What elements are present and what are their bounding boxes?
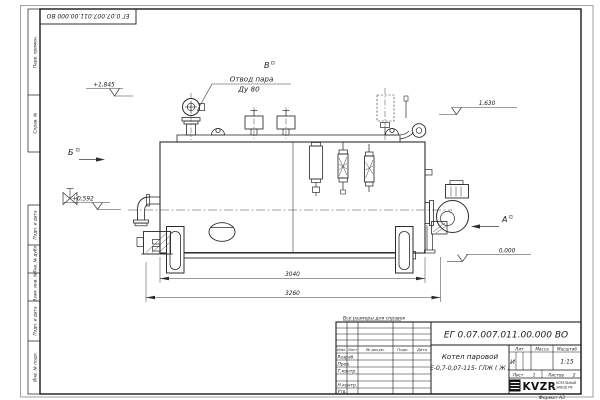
company-tagline-1: КОТЕЛЬНЫЙ	[556, 380, 577, 385]
view-b-label: Б	[68, 148, 74, 157]
col-izm: Изм.	[337, 347, 346, 352]
col-doc: № докум.	[365, 347, 385, 352]
sheets-label: Листов	[547, 373, 564, 378]
role-approver: Утв.	[338, 389, 347, 395]
margin-label-podp-data-1: Подп. и дата	[33, 210, 39, 240]
elevation-value: +0,592	[72, 197, 94, 203]
scale-value: 1:15	[560, 359, 574, 366]
drawing-sheet: ЕГ 0.07.007.011.00.000 ВО Перв. примен. …	[0, 0, 600, 400]
margin-label-inv-podl: Инв. № подл.	[33, 352, 39, 382]
callout-steam-line2: Ду 80	[237, 85, 260, 94]
view-a-label: А	[501, 215, 507, 224]
role-developer: Разраб.	[338, 355, 355, 361]
dim-value-3040: 3040	[285, 272, 300, 278]
col-list: Лист	[347, 347, 358, 352]
view-v-label: В	[264, 61, 270, 70]
elevation-value: +1,845	[93, 83, 115, 89]
sheet-label: Лист	[512, 373, 524, 378]
col-podp: Подп.	[397, 347, 409, 352]
role-checker: Пров.	[338, 362, 351, 368]
role-tcontrol: Т.контр.	[338, 369, 357, 375]
company-logo-text: KVZR	[523, 381, 557, 393]
mass-label: Масса	[535, 347, 549, 352]
lit-label: Лит.	[514, 347, 525, 352]
role-ncontrol: Н.контр.	[338, 383, 358, 389]
dim-value-3260: 3260	[285, 291, 300, 297]
lit-value: И	[510, 358, 515, 366]
boiler-general-view-drawing: ЕГ 0.07.007.011.00.000 ВО Перв. примен. …	[0, 0, 600, 400]
scale-label: Масштаб	[557, 347, 577, 352]
stamp-designation: ЕГ 0.07.007.011.00.000 ВО	[46, 12, 129, 19]
title-designation: ЕГ 0.07.007.011.00.000 ВО	[444, 331, 568, 341]
margin-label-vzam-inv: Взам. инв. №	[33, 272, 39, 302]
company-tagline-2: ЗАВОД РФ	[556, 386, 573, 390]
product-name-line2: Е-0,7-0,07-115- ГЛЖ ( Ж )	[430, 365, 510, 372]
margin-label-perv-primen: Перв. примен.	[33, 36, 39, 68]
margin-label-sprav: Справ. №	[33, 112, 39, 133]
format-label: Формат А3	[539, 395, 565, 400]
elevation-value: 1,630	[479, 101, 496, 107]
callout-steam-line1: Отвод пара	[230, 75, 274, 84]
margin-label-podp-data-2: Подп. и дата	[33, 306, 39, 336]
sheets-value: 2	[573, 373, 576, 379]
col-date: Дата	[416, 347, 428, 352]
reference-note: Все размеры для справок	[343, 316, 406, 322]
elevation-value: 0,000	[499, 249, 516, 255]
product-name-line1: Котел паровой	[442, 352, 499, 361]
margin-label-inv-dubl: Инв. № дубл.	[33, 244, 39, 273]
sheet-value: 1	[533, 373, 536, 379]
